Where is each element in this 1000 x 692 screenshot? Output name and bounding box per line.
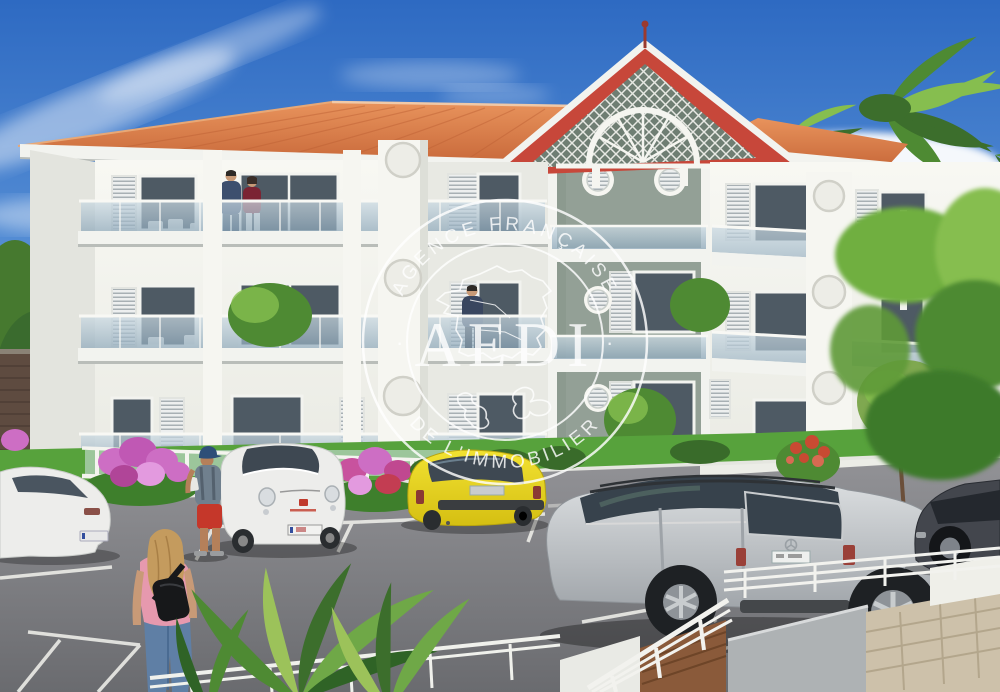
watermark-dot-left: · <box>396 330 403 355</box>
bougainvillea-far-left <box>1 429 29 451</box>
watermark-logo-text: AEDI <box>415 309 596 380</box>
watermark-dot-right: · <box>606 330 613 355</box>
rendering-canvas: AGENCE FRANÇAISE DE L'IMMOBILIER · · AED… <box>0 0 1000 692</box>
architectural-rendering: AGENCE FRANÇAISE DE L'IMMOBILIER · · AED… <box>0 0 1000 692</box>
